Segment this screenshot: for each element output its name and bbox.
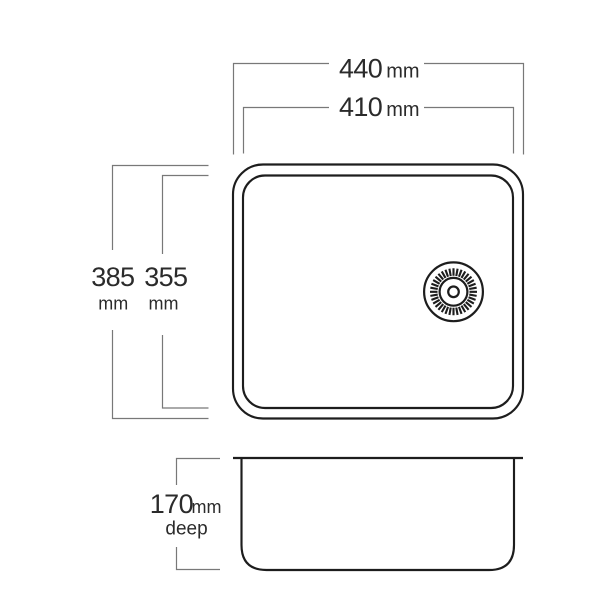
svg-text:mm: mm: [386, 60, 419, 82]
svg-text:mm: mm: [386, 99, 419, 121]
svg-text:deep: deep: [165, 518, 207, 539]
svg-text:mm: mm: [149, 293, 179, 313]
svg-text:mm: mm: [98, 293, 128, 313]
svg-text:mm: mm: [192, 497, 222, 517]
svg-text:170: 170: [150, 489, 194, 519]
svg-text:355: 355: [144, 262, 188, 292]
svg-text:440: 440: [339, 53, 383, 83]
svg-text:385: 385: [91, 262, 135, 292]
svg-text:410: 410: [339, 92, 383, 122]
